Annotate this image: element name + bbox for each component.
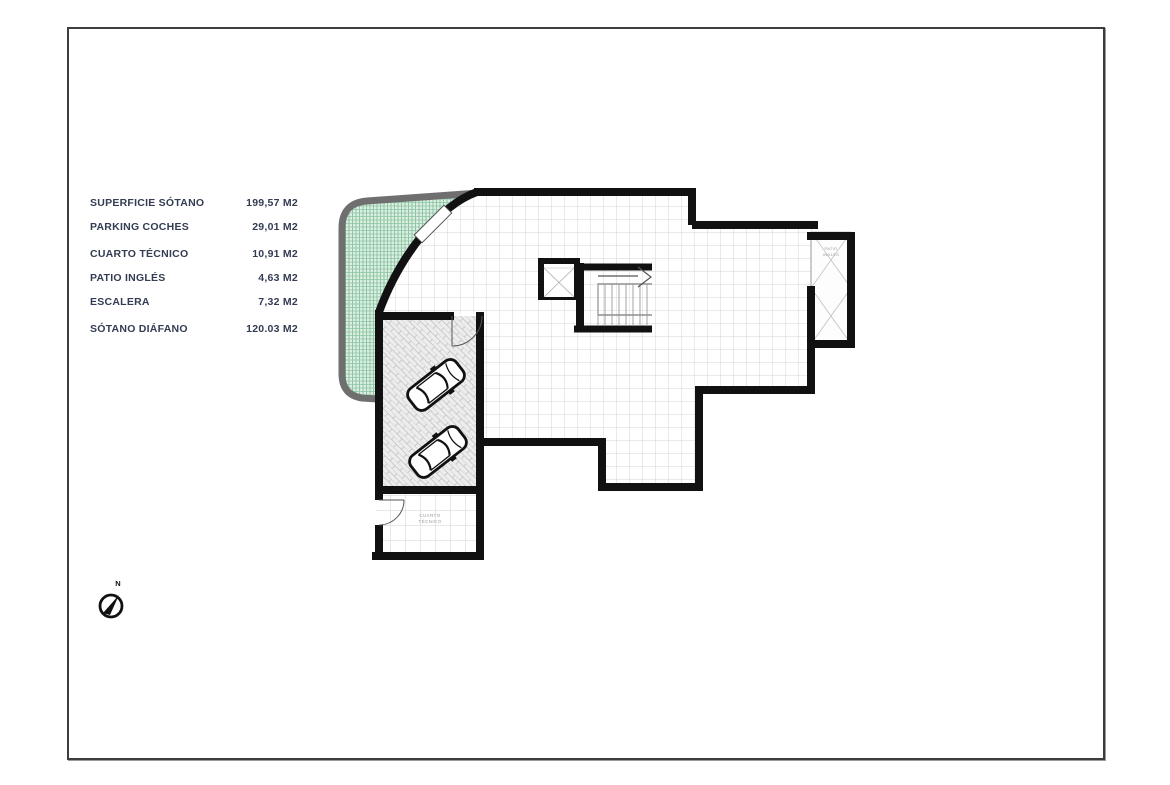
legend-row: PARKING COCHES 29,01 M2 <box>90 221 298 233</box>
legend-row: CUARTO TÉCNICO 10,91 M2 <box>90 248 298 260</box>
legend-label: SUPERFICIE SÓTANO <box>90 197 204 209</box>
legend-value: 4,63 M2 <box>258 272 298 284</box>
legend-label: CUARTO TÉCNICO <box>90 248 188 260</box>
surface-legend: SUPERFICIE SÓTANO 199,57 M2 PARKING COCH… <box>90 197 298 347</box>
cuarto-tecnico-label-line2: TÉCNICO <box>418 518 441 524</box>
north-indicator: N <box>92 574 140 626</box>
cuarto-tecnico-label-line1: CUARTO <box>419 513 440 518</box>
legend-row: PATIO INGLÉS 4,63 M2 <box>90 272 298 284</box>
legend-value: 199,57 M2 <box>246 197 298 209</box>
patio-ingles-label-line1: PATIO <box>825 246 838 251</box>
legend-label: ESCALERA <box>90 296 150 308</box>
legend-row: ESCALERA 7,32 M2 <box>90 296 298 308</box>
elevator-shaft <box>538 258 580 300</box>
legend-value: 10,91 M2 <box>252 248 298 260</box>
legend-row: SÓTANO DIÁFANO 120.03 M2 <box>90 323 298 335</box>
floor-plan-drawing: CUARTO TÉCNICO PATIO INGLÉS <box>330 180 870 570</box>
north-label: N <box>115 579 120 588</box>
patio-ingles-label-line2: INGLÉS <box>823 252 840 257</box>
legend-label: PARKING COCHES <box>90 221 189 233</box>
legend-label: SÓTANO DIÁFANO <box>90 323 188 335</box>
legend-value: 29,01 M2 <box>252 221 298 233</box>
legend-value: 7,32 M2 <box>258 296 298 308</box>
page: SUPERFICIE SÓTANO 199,57 M2 PARKING COCH… <box>0 0 1170 785</box>
legend-value: 120.03 M2 <box>246 323 298 335</box>
legend-label: PATIO INGLÉS <box>90 272 166 284</box>
room-patio-ingles: PATIO INGLÉS <box>811 232 851 344</box>
legend-row: SUPERFICIE SÓTANO 199,57 M2 <box>90 197 298 209</box>
